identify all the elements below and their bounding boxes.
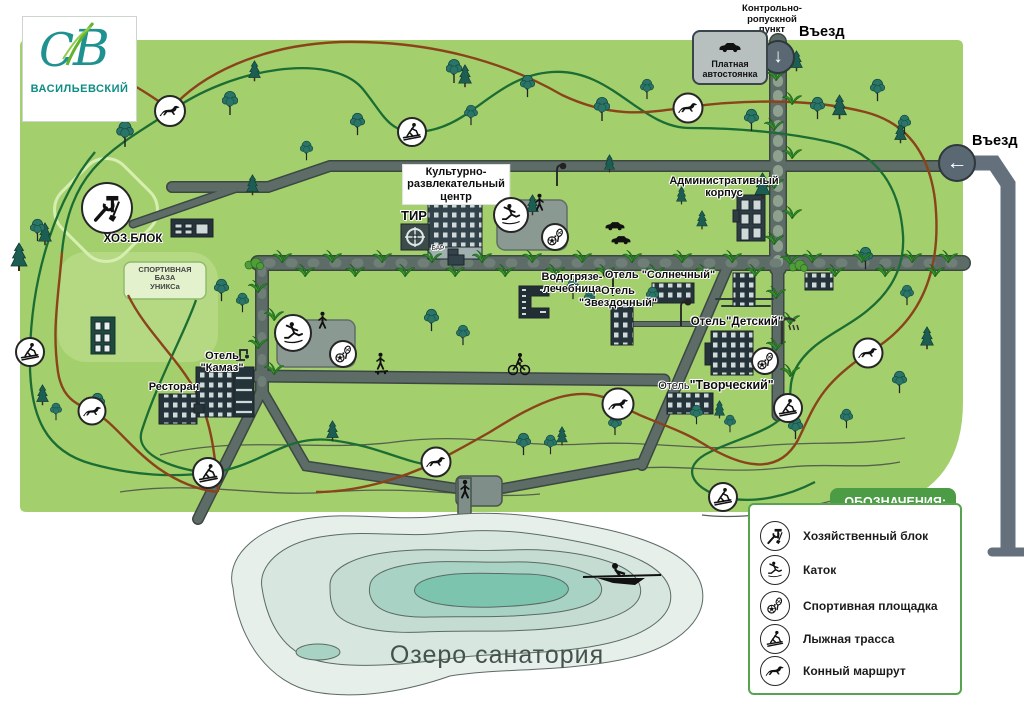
skater-icon — [760, 555, 790, 585]
legend-item-label: Каток — [803, 563, 836, 577]
down-arrow-icon: ↓ — [773, 46, 783, 68]
horse-route-icon — [154, 95, 186, 127]
sport-icon — [760, 591, 790, 621]
hotel-kids-building — [705, 331, 753, 375]
skater-icon — [498, 202, 524, 228]
label-line: Административный — [669, 175, 778, 187]
legend-item-label: Спортивная площадка — [803, 599, 938, 613]
entry-top-label: Въезд — [799, 24, 845, 40]
label-line: Отель — [200, 350, 243, 362]
car-icon — [708, 34, 752, 54]
ski-trail-icon — [15, 337, 45, 367]
shooting-range-label: ТИР — [401, 209, 427, 224]
hotel-star-label: Отель "Звездочный" — [579, 285, 657, 310]
skater-icon — [280, 320, 307, 347]
hotel-star-building — [611, 305, 633, 345]
label-line: развлекательный — [407, 178, 505, 190]
ski-icon — [19, 341, 41, 363]
ski-icon — [401, 121, 423, 143]
logo-flourish — [61, 21, 97, 69]
entry-right-label: Въезд — [972, 133, 1018, 149]
sport-icon — [545, 227, 566, 248]
ski-icon — [760, 624, 790, 654]
label-prefix: Отель — [658, 380, 689, 392]
legend-item: Конный маршрут — [760, 656, 906, 686]
ice-rink-icon — [274, 314, 312, 352]
label-line: Отель — [579, 285, 657, 297]
ski-icon — [197, 462, 220, 485]
legend-item-label: Конный маршрут — [803, 664, 906, 678]
sport-ground-icon — [751, 347, 779, 375]
hotel-creative-building — [667, 393, 713, 414]
horse-icon — [158, 102, 182, 120]
legend-item: Каток — [760, 555, 836, 585]
legend-box: Хозяйственный блок Каток Спортивная площ… — [748, 503, 962, 695]
uniks-building — [91, 317, 115, 354]
sport-icon — [755, 351, 776, 372]
tools-icon — [760, 521, 790, 551]
shooting-range-building — [401, 224, 429, 250]
lake-label: Озеро санатория — [390, 641, 604, 670]
hoz-block-icon — [81, 182, 133, 234]
hotel-creative-label: Отель"Творческий" — [658, 378, 774, 392]
ski-icon — [777, 397, 799, 419]
horse-route-icon — [602, 388, 635, 421]
ski-trail-icon — [397, 117, 427, 147]
horse-route-icon — [78, 397, 107, 426]
resort-logo: С В ВАСИЛЬЕВСКИЙ — [22, 16, 137, 122]
label-line: УНИКСа — [138, 283, 191, 291]
horse-route-icon — [853, 338, 884, 369]
label-name: "Творческий" — [690, 378, 774, 392]
label-line: Водогрязе- — [542, 271, 603, 283]
legend-item: Лыжная трасса — [760, 624, 894, 654]
sport-ground-icon — [541, 223, 569, 251]
label-line: "Камаз" — [200, 362, 243, 374]
bar-label: БАР — [432, 245, 445, 252]
horse-icon — [677, 100, 700, 117]
horse-icon — [857, 345, 880, 362]
legend-item-label: Лыжная трасса — [803, 632, 894, 646]
logo-name: ВАСИЛЬЕВСКИЙ — [23, 83, 136, 95]
label-line: автостоянка — [696, 69, 764, 79]
horse-icon — [81, 403, 103, 419]
sport-icon — [333, 344, 354, 365]
restaurant-building — [159, 394, 204, 424]
ski-trail-icon — [773, 393, 803, 423]
legend-item-label: Хозяйственный блок — [803, 529, 928, 543]
ski-trail-icon — [192, 457, 224, 489]
admin-label: Административный корпус — [669, 175, 778, 200]
horse-route-icon — [673, 93, 704, 124]
label-line: корпус — [669, 187, 778, 199]
culture-center-label: Культурно- развлекательный центр — [402, 164, 510, 205]
label-line: центр — [407, 191, 505, 203]
label-line: Платная — [696, 59, 764, 69]
ski-trail-icon — [708, 482, 738, 512]
horse-route-icon — [421, 447, 452, 478]
left-arrow-icon: ← — [947, 151, 968, 175]
admin-building — [733, 195, 765, 241]
hotel-kamaz-label: Отель "Камаз" — [200, 350, 243, 375]
paid-parking-sign: Платная автостоянка — [692, 30, 768, 85]
legend-item: Хозяйственный блок — [760, 521, 928, 551]
sport-base-label: СПОРТИВНАЯ БАЗА УНИКСа — [138, 266, 191, 291]
logo-monogram: С В — [23, 17, 136, 83]
hotel-kids-label: Отель"Детский" — [691, 316, 784, 329]
ice-rink-icon — [493, 197, 529, 233]
label-line: Культурно- — [407, 166, 505, 178]
label-line: "Звездочный" — [579, 297, 657, 309]
horse-icon — [760, 656, 790, 686]
entry-right-arrow-sign: ← — [938, 144, 976, 182]
restaurant-label: Ресторан — [149, 381, 200, 393]
legend-item: Спортивная площадка — [760, 591, 938, 621]
hoz-barrack-building — [171, 219, 213, 237]
hoz-block-label: ХОЗ.БЛОК — [104, 233, 163, 246]
tools-icon — [90, 191, 124, 225]
hotel-sunny-label: Отель "Солнечный" — [605, 269, 715, 281]
resort-map-stage: С В ВАСИЛЬЕВСКИЙ Контрольно- ропускной п… — [0, 0, 1024, 705]
horse-icon — [425, 454, 448, 471]
sport-ground-icon — [329, 340, 357, 368]
horse-icon — [606, 395, 630, 413]
ski-icon — [712, 486, 734, 508]
parking-label: Платная автостоянка — [696, 59, 764, 80]
